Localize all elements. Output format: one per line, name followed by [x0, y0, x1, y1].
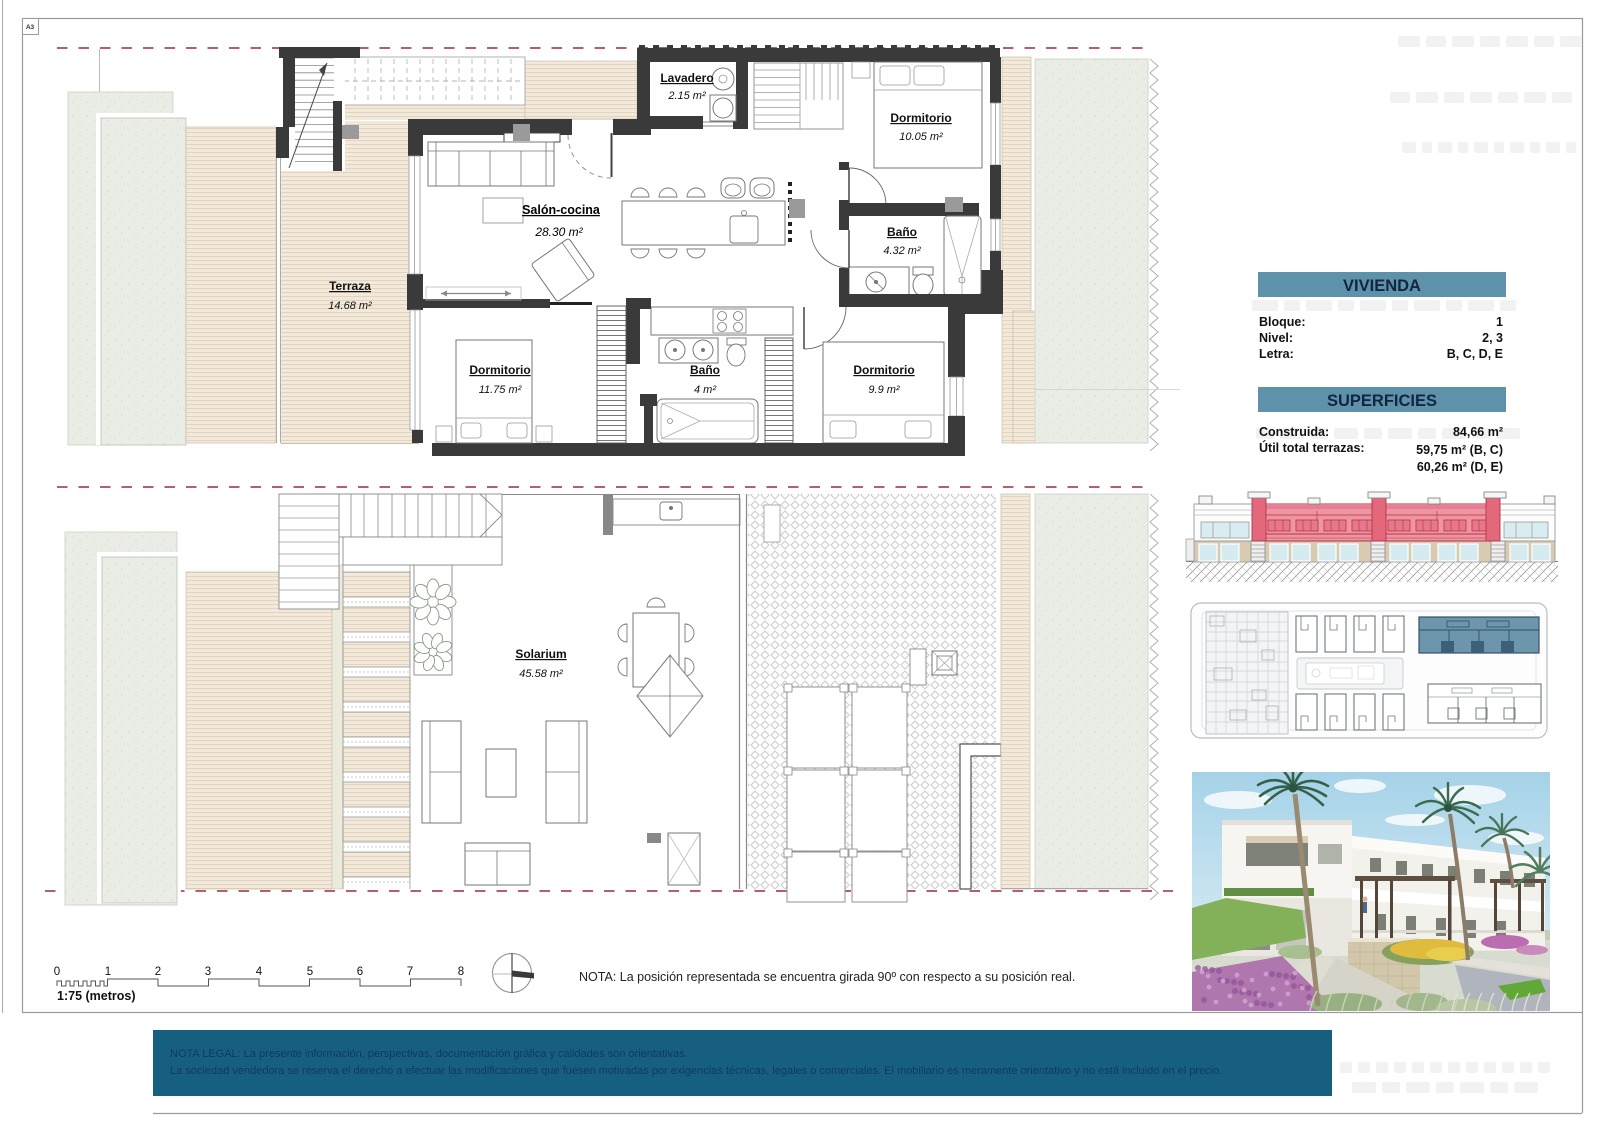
svg-text:4.32 m²: 4.32 m²	[883, 245, 921, 257]
svg-text:Salón-cocina: Salón-cocina	[522, 203, 601, 217]
svg-text:10.05 m²: 10.05 m²	[899, 131, 943, 143]
svg-text:Baño: Baño	[887, 225, 917, 239]
svg-text:La sociedad vendedora se reser: La sociedad vendedora se reserva el dere…	[170, 1065, 1222, 1077]
svg-text:7: 7	[407, 966, 413, 978]
svg-text:SUPERFICIES: SUPERFICIES	[1327, 392, 1437, 410]
svg-text:VIVIENDA: VIVIENDA	[1343, 277, 1421, 295]
svg-text:0: 0	[54, 966, 60, 978]
svg-text:1:75 (metros): 1:75 (metros)	[57, 989, 136, 1003]
svg-text:Bloque:: Bloque:	[1259, 315, 1306, 329]
svg-text:6: 6	[357, 966, 363, 978]
svg-text:59,75 m² (B, C): 59,75 m² (B, C)	[1416, 443, 1503, 457]
svg-text:8: 8	[458, 966, 464, 978]
svg-text:Lavadero: Lavadero	[660, 71, 713, 85]
svg-text:Dormitorio: Dormitorio	[469, 363, 530, 377]
svg-text:9.9 m²: 9.9 m²	[868, 384, 900, 396]
svg-text:Útil total terrazas:: Útil total terrazas:	[1259, 440, 1365, 455]
svg-text:NOTA LEGAL: La presente inform: NOTA LEGAL: La presente información, per…	[170, 1048, 688, 1060]
svg-text:60,26 m² (D, E): 60,26 m² (D, E)	[1417, 460, 1503, 474]
svg-text:2: 2	[155, 966, 161, 978]
svg-text:2.15 m²: 2.15 m²	[667, 90, 706, 102]
svg-text:Construida:: Construida:	[1259, 425, 1329, 439]
svg-text:1: 1	[105, 966, 111, 978]
svg-text:11.75 m²: 11.75 m²	[479, 384, 522, 396]
svg-text:B, C, D, E: B, C, D, E	[1447, 347, 1503, 361]
svg-text:28.30 m²: 28.30 m²	[534, 225, 583, 239]
svg-text:NOTA: La posición representada: NOTA: La posición representada se encuen…	[579, 970, 1075, 984]
svg-text:Baño: Baño	[690, 363, 720, 377]
svg-text:3: 3	[205, 966, 211, 978]
svg-text:84,66 m²: 84,66 m²	[1453, 425, 1503, 439]
svg-text:Letra:: Letra:	[1259, 347, 1294, 361]
svg-text:5: 5	[307, 966, 313, 978]
svg-text:45.58 m²: 45.58 m²	[519, 668, 563, 680]
svg-text:Dormitorio: Dormitorio	[890, 111, 951, 125]
svg-text:Solarium: Solarium	[515, 647, 566, 661]
svg-text:2, 3: 2, 3	[1482, 331, 1503, 345]
svg-text:Terraza: Terraza	[329, 279, 371, 293]
svg-text:Nivel:: Nivel:	[1259, 331, 1293, 345]
svg-text:Dormitorio: Dormitorio	[853, 363, 914, 377]
svg-text:14.68 m²: 14.68 m²	[328, 300, 372, 312]
svg-text:A3: A3	[26, 24, 35, 31]
svg-text:1: 1	[1496, 315, 1503, 329]
svg-text:4: 4	[256, 966, 263, 978]
svg-text:4 m²: 4 m²	[694, 384, 716, 396]
